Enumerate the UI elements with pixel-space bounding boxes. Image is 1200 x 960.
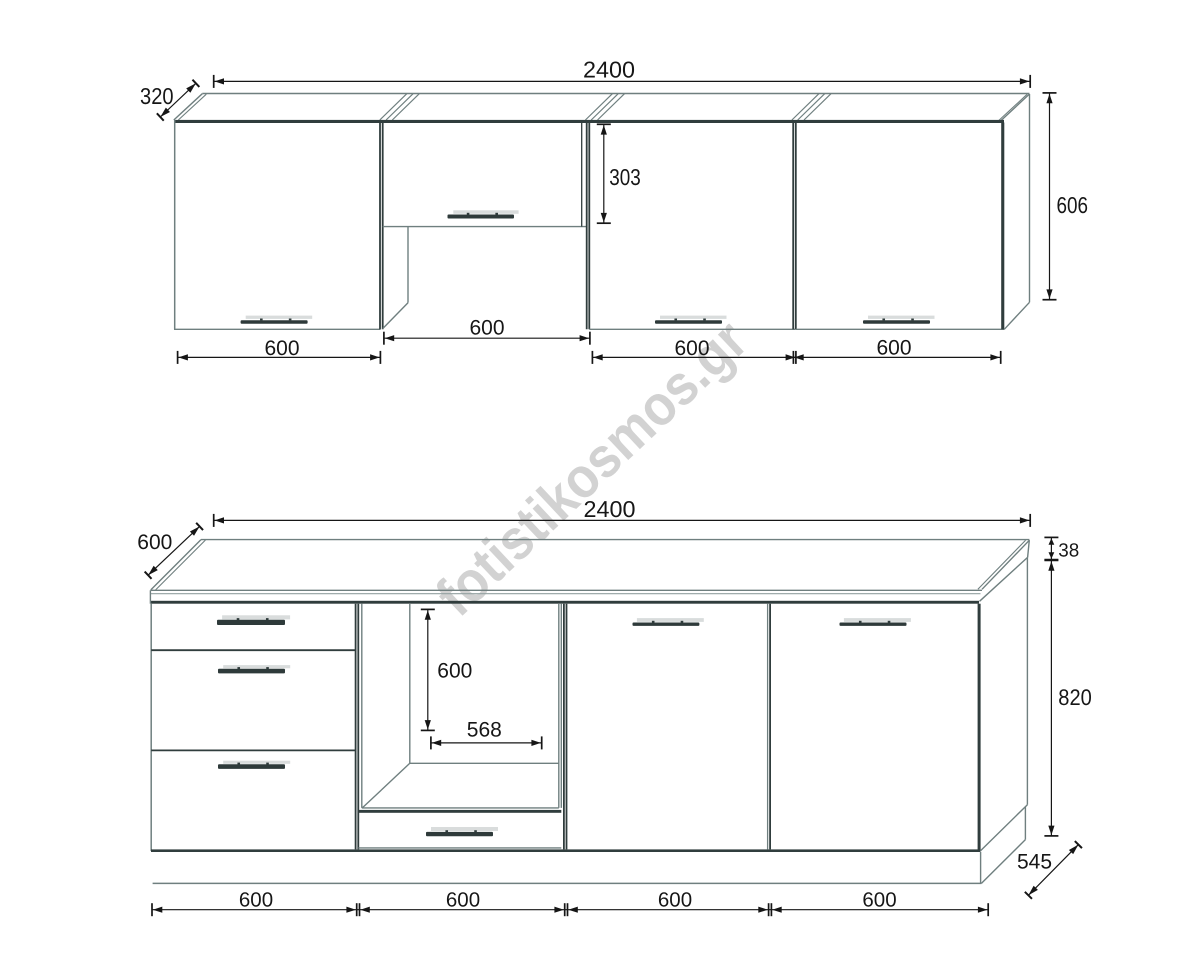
svg-text:820: 820 bbox=[1058, 685, 1092, 710]
svg-text:600: 600 bbox=[446, 889, 480, 912]
svg-text:600: 600 bbox=[674, 337, 709, 360]
svg-text:600: 600 bbox=[658, 889, 692, 912]
svg-text:545: 545 bbox=[1017, 850, 1052, 873]
svg-text:2400: 2400 bbox=[583, 57, 635, 83]
svg-text:606: 606 bbox=[1057, 192, 1089, 218]
svg-text:600: 600 bbox=[469, 316, 504, 339]
svg-text:568: 568 bbox=[467, 719, 502, 742]
svg-text:600: 600 bbox=[239, 889, 273, 912]
svg-text:600: 600 bbox=[876, 337, 911, 360]
svg-text:600: 600 bbox=[137, 531, 172, 554]
svg-text:320: 320 bbox=[140, 83, 174, 109]
svg-text:600: 600 bbox=[862, 889, 896, 912]
svg-text:2400: 2400 bbox=[584, 496, 636, 522]
svg-text:303: 303 bbox=[609, 164, 641, 190]
svg-text:600: 600 bbox=[437, 659, 472, 682]
svg-text:38: 38 bbox=[1058, 541, 1079, 562]
svg-text:600: 600 bbox=[264, 337, 299, 360]
